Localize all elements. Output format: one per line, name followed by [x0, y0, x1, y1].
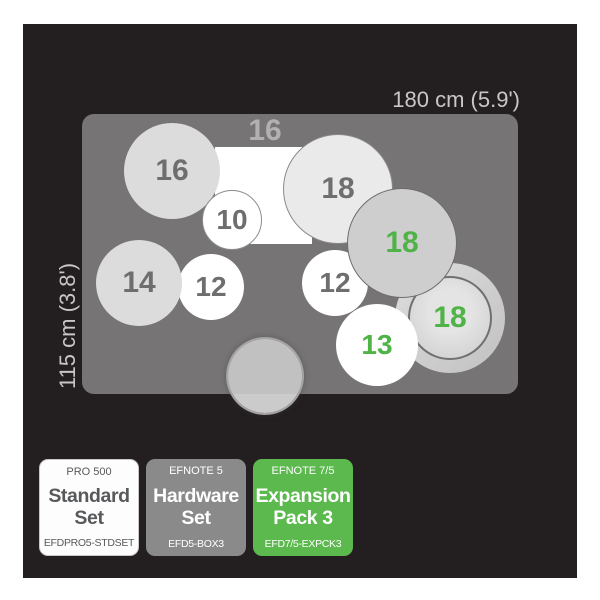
legend-product-code: EFD5-BOX3	[168, 539, 224, 550]
legend-card-hardware-set: EFNOTE 5 Hardware Set EFD5-BOX3	[146, 459, 246, 556]
drum-size-label: 18	[385, 228, 418, 258]
legend-card-expansion-pack: EFNOTE 7/5 Expansion Pack 3 EFD7/5-EXPCK…	[253, 459, 353, 556]
width-dimension-label: 180 cm (5.9')	[320, 87, 520, 113]
drum-size-label: 18	[321, 174, 354, 204]
drum-size-label: 16	[155, 156, 188, 186]
legend-series-label: EFNOTE 7/5	[272, 466, 335, 477]
rect-size-label: 16	[215, 114, 315, 148]
drum-size-label: 12	[319, 269, 350, 297]
drum-tom-10: 10	[202, 190, 262, 250]
height-dimension-label: 115 cm (3.8')	[55, 251, 79, 401]
drum-size-label: 10	[216, 206, 247, 234]
drum-size-label: 14	[122, 268, 155, 298]
drum-kit-layout-diagram: 180 cm (5.9') 115 cm (3.8') 16 16 18 10 …	[0, 0, 600, 600]
legend-series-label: PRO 500	[66, 467, 111, 478]
legend-title: Expansion Pack 3	[254, 486, 352, 529]
legend-card-standard-set: PRO 500 Standard Set EFDPRO5-STDSET	[39, 459, 139, 556]
legend-title: Hardware Set	[147, 486, 245, 529]
drum-size-label: 18	[433, 303, 466, 333]
drum-tom-14: 14	[96, 240, 182, 326]
legend-series-label: EFNOTE 5	[169, 466, 223, 477]
legend-product-code: EFD7/5-EXPCK3	[265, 539, 342, 550]
drum-size-label: 12	[195, 273, 226, 301]
legend-title: Standard Set	[41, 486, 137, 529]
drum-size-label: 13	[361, 331, 392, 359]
drum-ride-18: 18	[347, 188, 457, 298]
legend: PRO 500 Standard Set EFDPRO5-STDSET EFNO…	[39, 459, 353, 556]
drum-tom-12-left: 12	[178, 254, 244, 320]
drum-kick	[228, 339, 302, 413]
drum-tom-13: 13	[336, 304, 418, 386]
legend-product-code: EFDPRO5-STDSET	[44, 538, 134, 549]
